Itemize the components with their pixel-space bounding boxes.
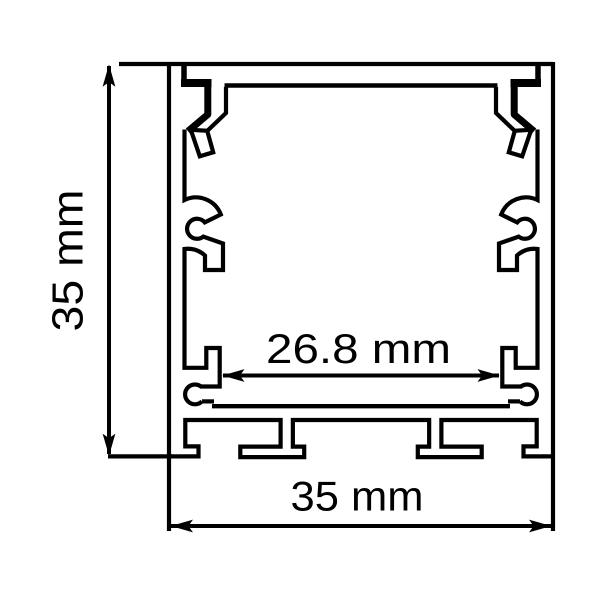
svg-text:35 mm: 35 mm [44, 190, 93, 332]
svg-text:35 mm: 35 mm [291, 473, 424, 520]
svg-text:26.8 mm: 26.8 mm [266, 325, 451, 372]
